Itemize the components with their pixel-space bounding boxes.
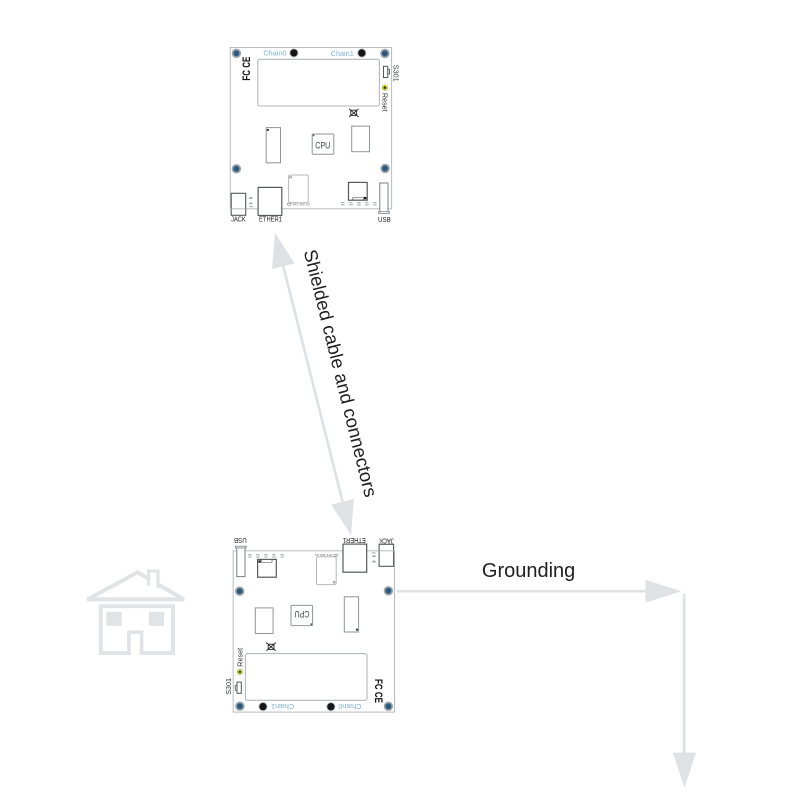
svg-text:Shielded cable and connectors: Shielded cable and connectors bbox=[300, 247, 382, 499]
svg-text:Grounding: Grounding bbox=[482, 560, 575, 582]
